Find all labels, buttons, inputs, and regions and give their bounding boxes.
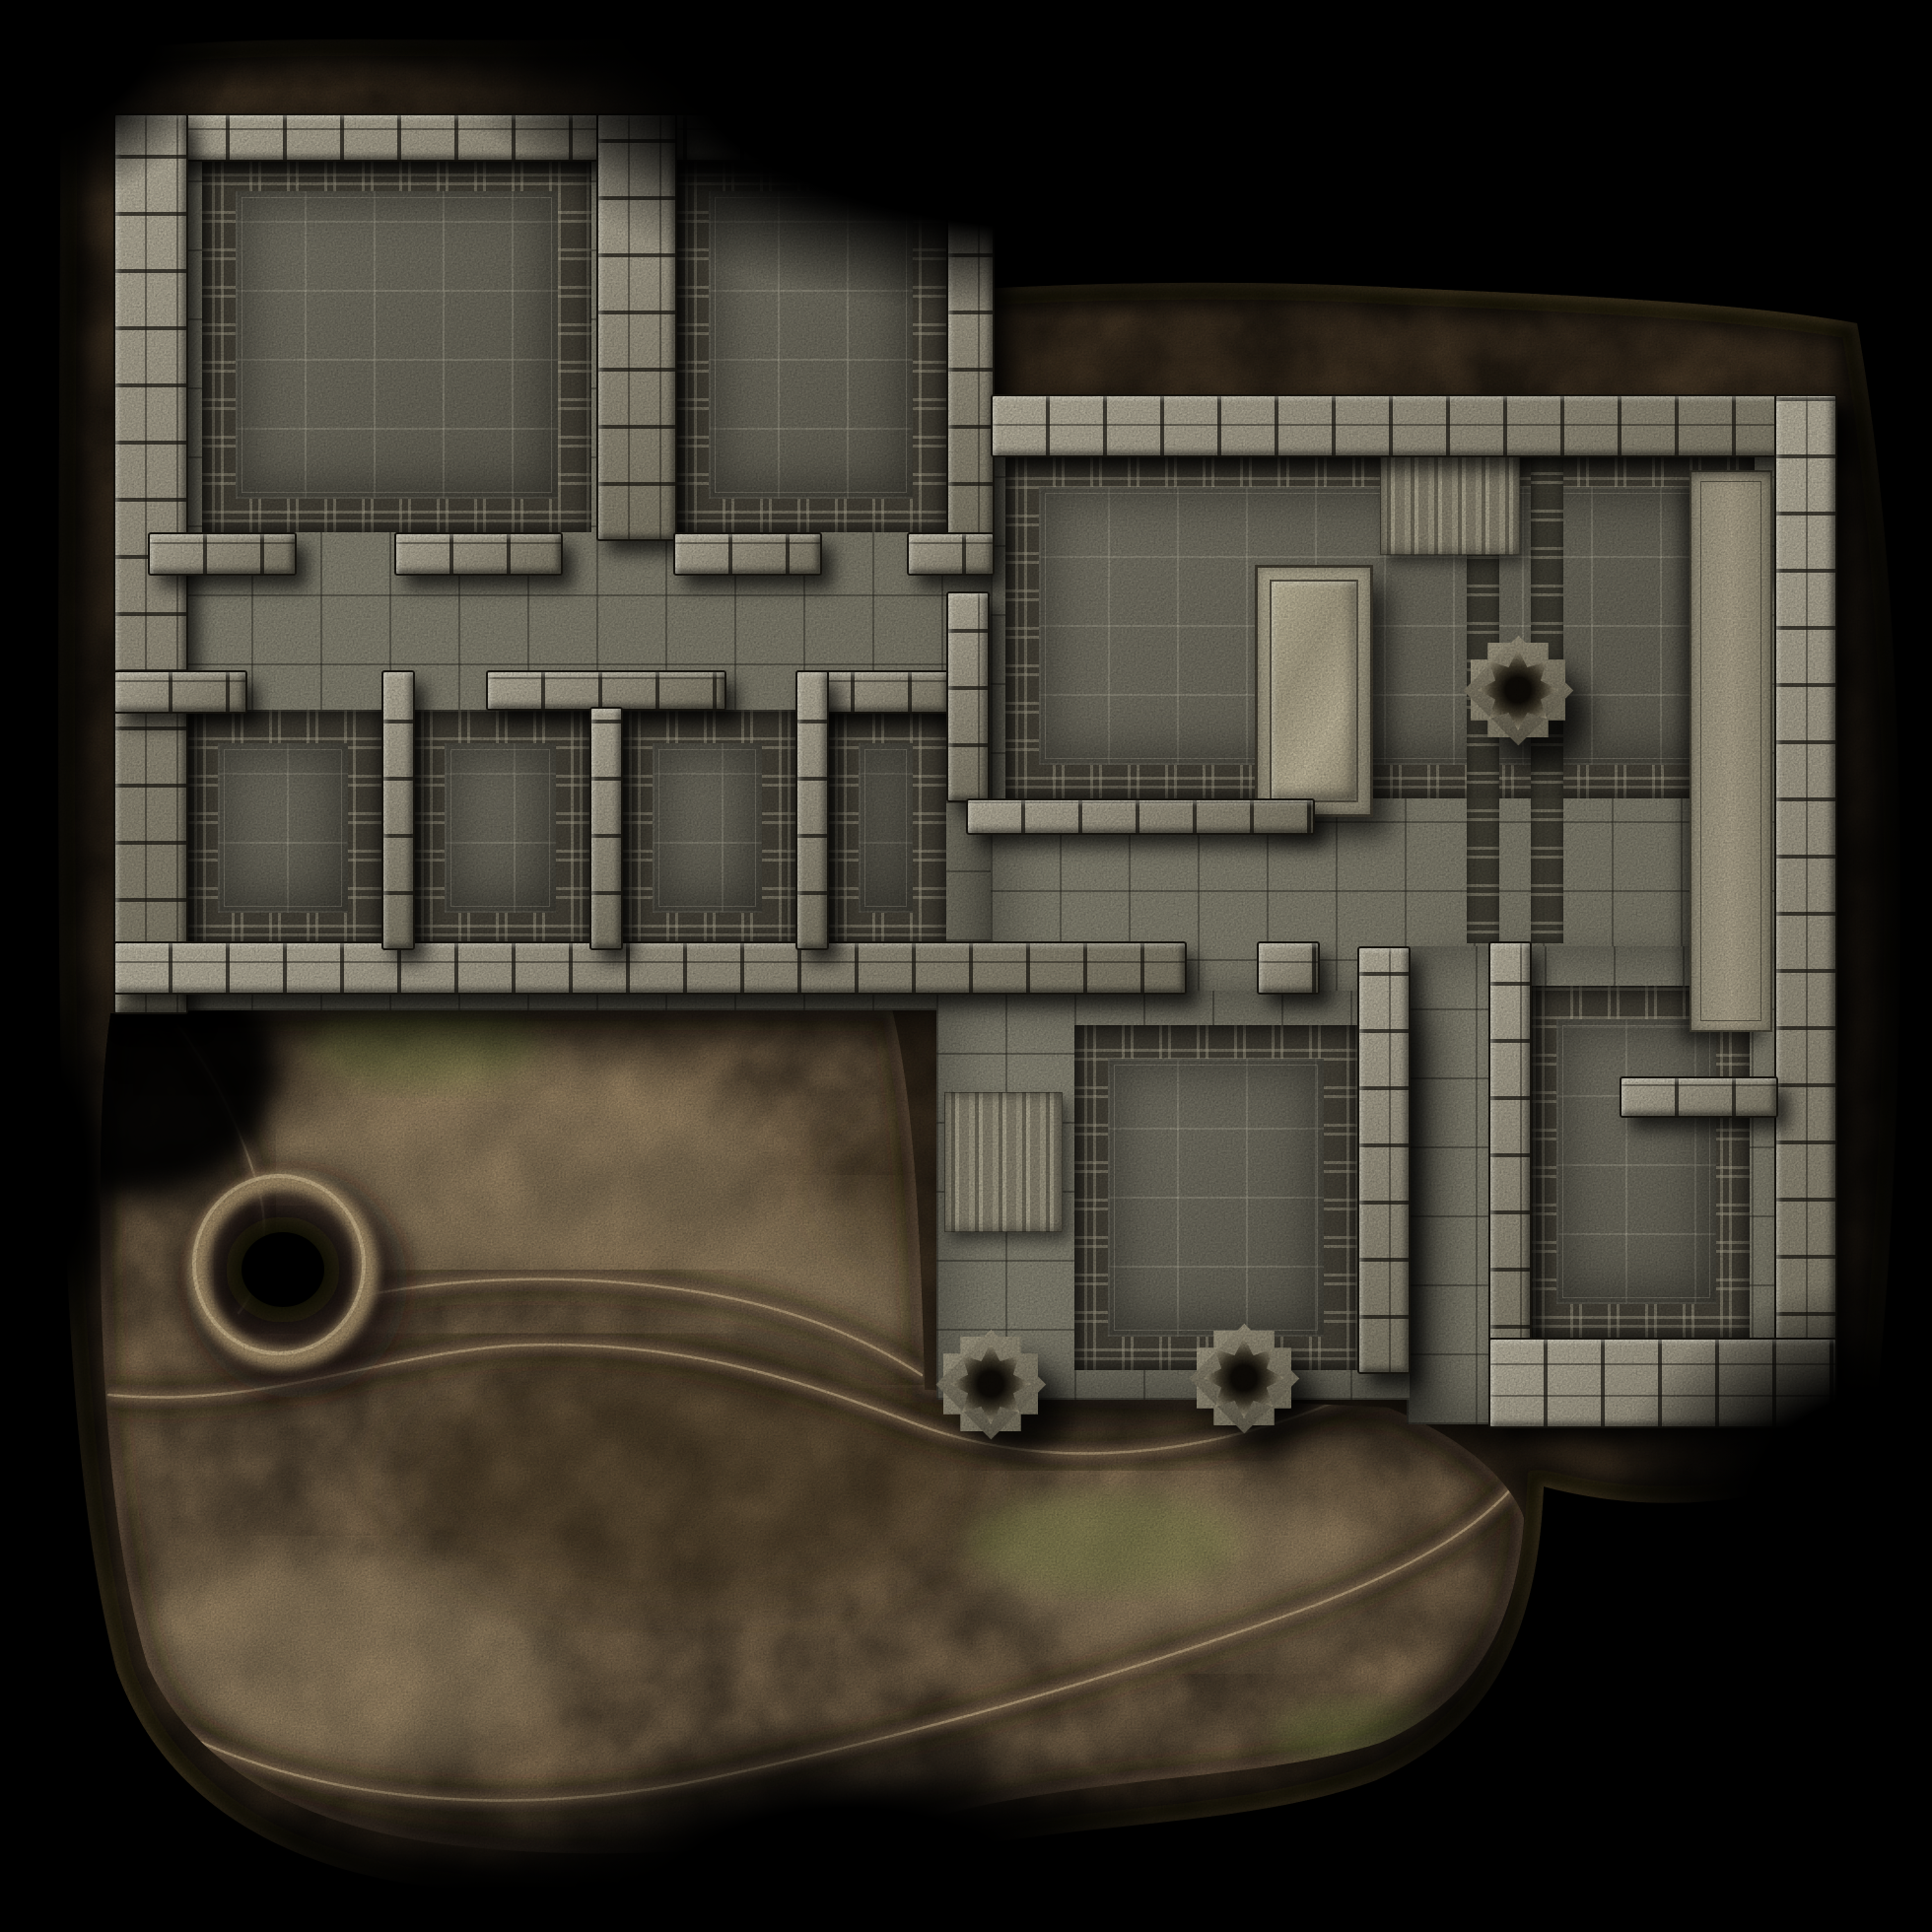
pillar-porch-west [943, 1337, 1038, 1431]
pillar-porch-west-star [950, 1344, 1032, 1425]
pillar-hall [1471, 643, 1565, 737]
pillars-layer [0, 0, 1932, 1932]
pillar-porch-east [1197, 1331, 1291, 1425]
pillar-porch-east-star [1204, 1338, 1285, 1419]
dungeon-battle-map [0, 0, 1932, 1932]
pillar-hall-star [1478, 650, 1559, 731]
